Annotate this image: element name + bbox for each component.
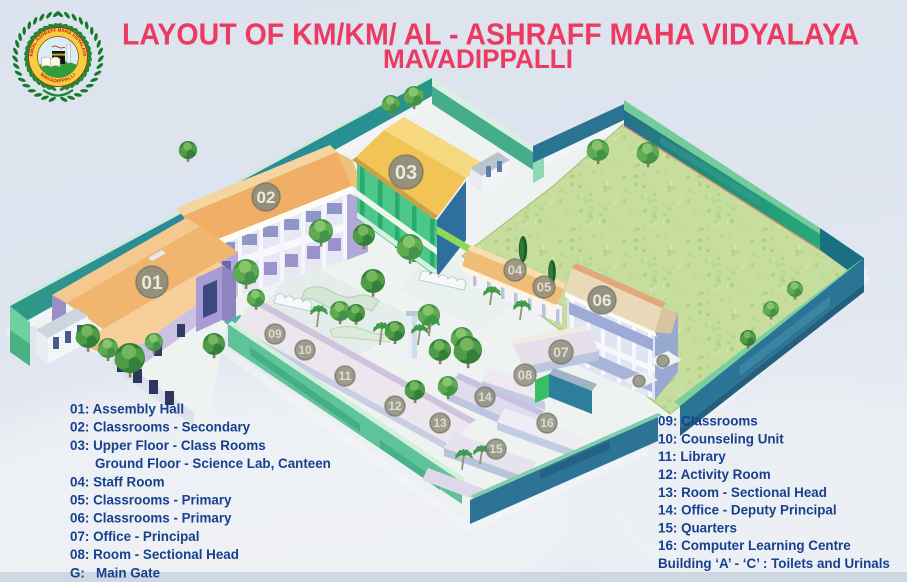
svg-text:14: Office - Deputy Principal: 14: Office - Deputy Principal [658,503,837,518]
svg-text:06: Classrooms - Primary: 06: Classrooms - Primary [70,511,232,526]
svg-text:16: 16 [540,416,554,430]
svg-text:04: Staff Room: 04: Staff Room [70,474,165,489]
svg-text:12: 12 [388,399,402,413]
svg-text:11: 11 [339,369,352,383]
svg-text:14: 14 [478,390,492,404]
svg-text:11: Library: 11: Library [658,449,726,464]
svg-text:05: 05 [537,280,551,295]
svg-text:MAVADIPPALLI: MAVADIPPALLI [383,44,573,74]
svg-text:13: 13 [433,416,447,430]
svg-text:15: Quarters: 15: Quarters [658,520,737,535]
svg-text:07: Office - Principal: 07: Office - Principal [70,529,199,544]
svg-text:03: 03 [395,162,417,184]
svg-text:05: Classrooms - Primary: 05: Classrooms - Primary [70,493,232,508]
svg-text:10: Counseling Unit: 10: Counseling Unit [658,431,784,446]
svg-text:16: Computer Learning Centre: 16: Computer Learning Centre [658,538,851,553]
svg-text:01: 01 [141,273,163,294]
svg-text:07: 07 [553,344,569,360]
svg-text:06: 06 [593,291,612,310]
svg-text:02: Classrooms - Secondary: 02: Classrooms - Secondary [70,420,251,435]
svg-text:04: 04 [508,263,523,278]
svg-text:02: 02 [257,188,276,207]
svg-text:15: 15 [489,442,503,456]
svg-text:G: Main Gate: G: Main Gate [70,565,160,580]
svg-text:Building ‘A’ - ‘C’ : Toilets a: Building ‘A’ - ‘C’ : Toilets and Urinals [658,556,890,571]
svg-text:Ground Floor - Science Lab, Ca: Ground Floor - Science Lab, Canteen [95,456,331,471]
svg-text:10: 10 [298,343,312,357]
svg-text:13: Room - Sectional Head: 13: Room - Sectional Head [658,485,827,500]
svg-text:08: 08 [518,368,532,383]
svg-text:12: Activity Room: 12: Activity Room [658,467,771,482]
svg-text:09: Classrooms: 09: Classrooms [658,414,758,429]
svg-text:01: Assembly Hall: 01: Assembly Hall [70,402,184,417]
svg-text:08: Room - Sectional Head: 08: Room - Sectional Head [70,547,239,562]
svg-text:09: 09 [268,327,282,341]
svg-text:03: Upper Floor - Class Rooms: 03: Upper Floor - Class Rooms [70,438,266,453]
